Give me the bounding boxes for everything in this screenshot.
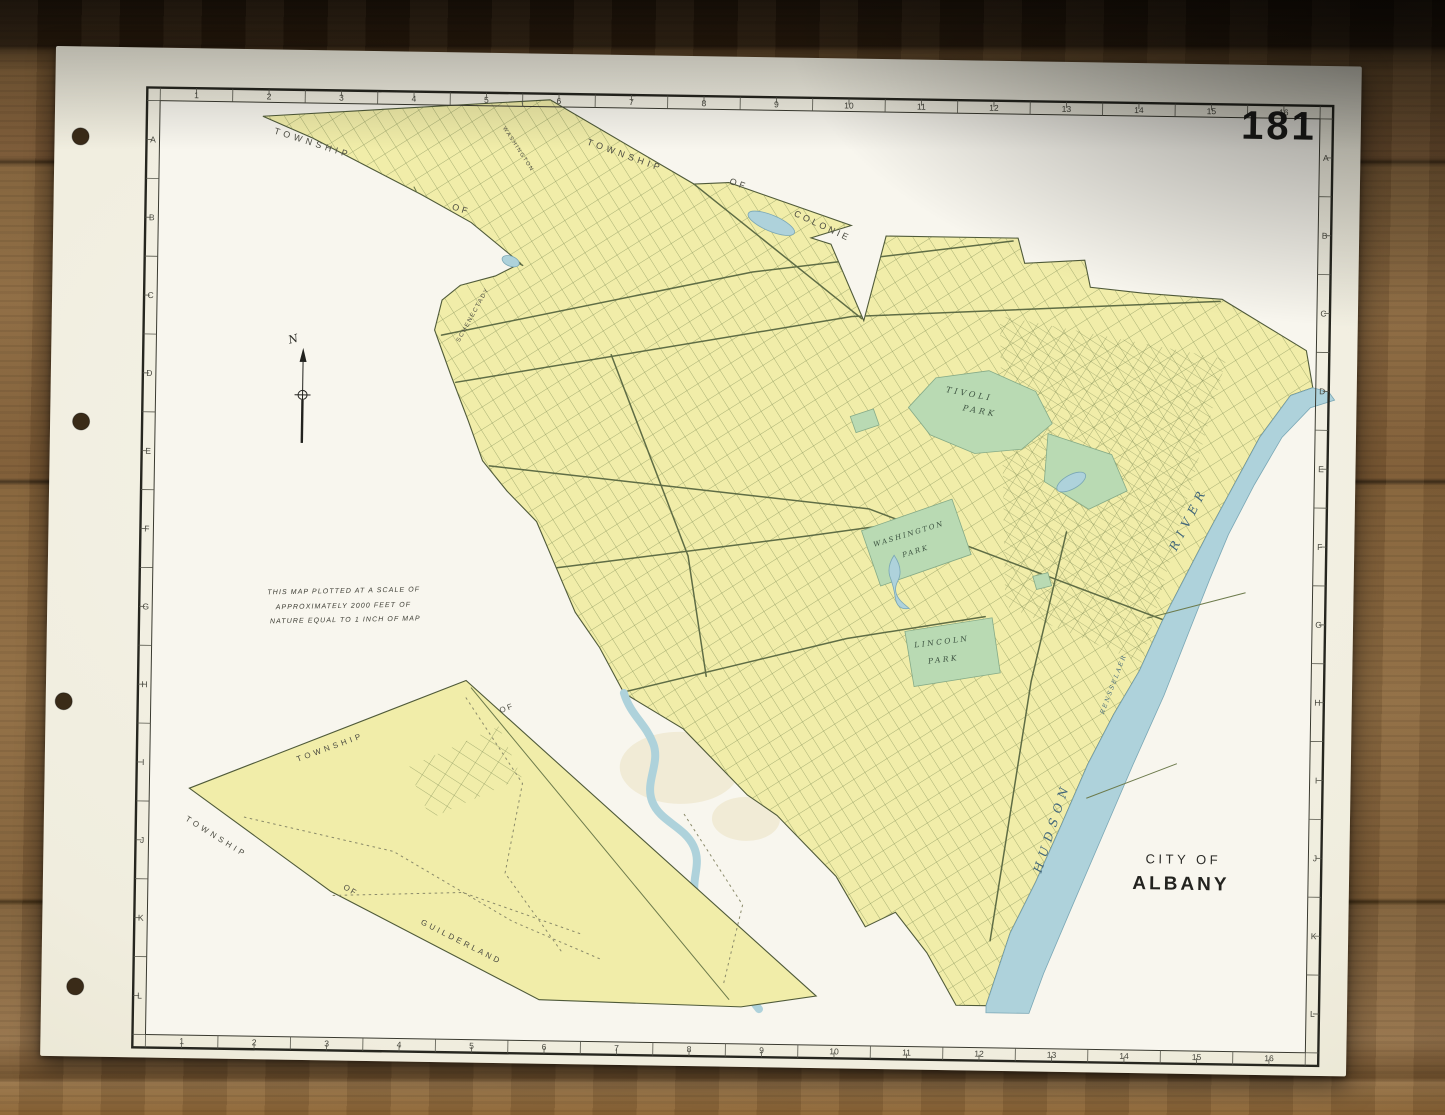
punch-hole [72,128,89,145]
city-of-label: CITY OF [1145,851,1221,867]
scale-note: THIS MAP PLOTTED AT A SCALE OF APPROXIMA… [267,586,420,625]
page-number: 181 [1241,104,1317,149]
albany-title-label: ALBANY [1132,873,1229,896]
punch-hole [67,978,84,995]
punch-hole [72,413,89,430]
punch-hole [55,693,72,710]
map-sheet: 1122334455667788991010111112121313141415… [40,46,1362,1076]
albany-atlas-map: 1122334455667788991010111112121313141415… [40,46,1362,1076]
photo-scene: 1122334455667788991010111112121313141415… [0,0,1445,1115]
